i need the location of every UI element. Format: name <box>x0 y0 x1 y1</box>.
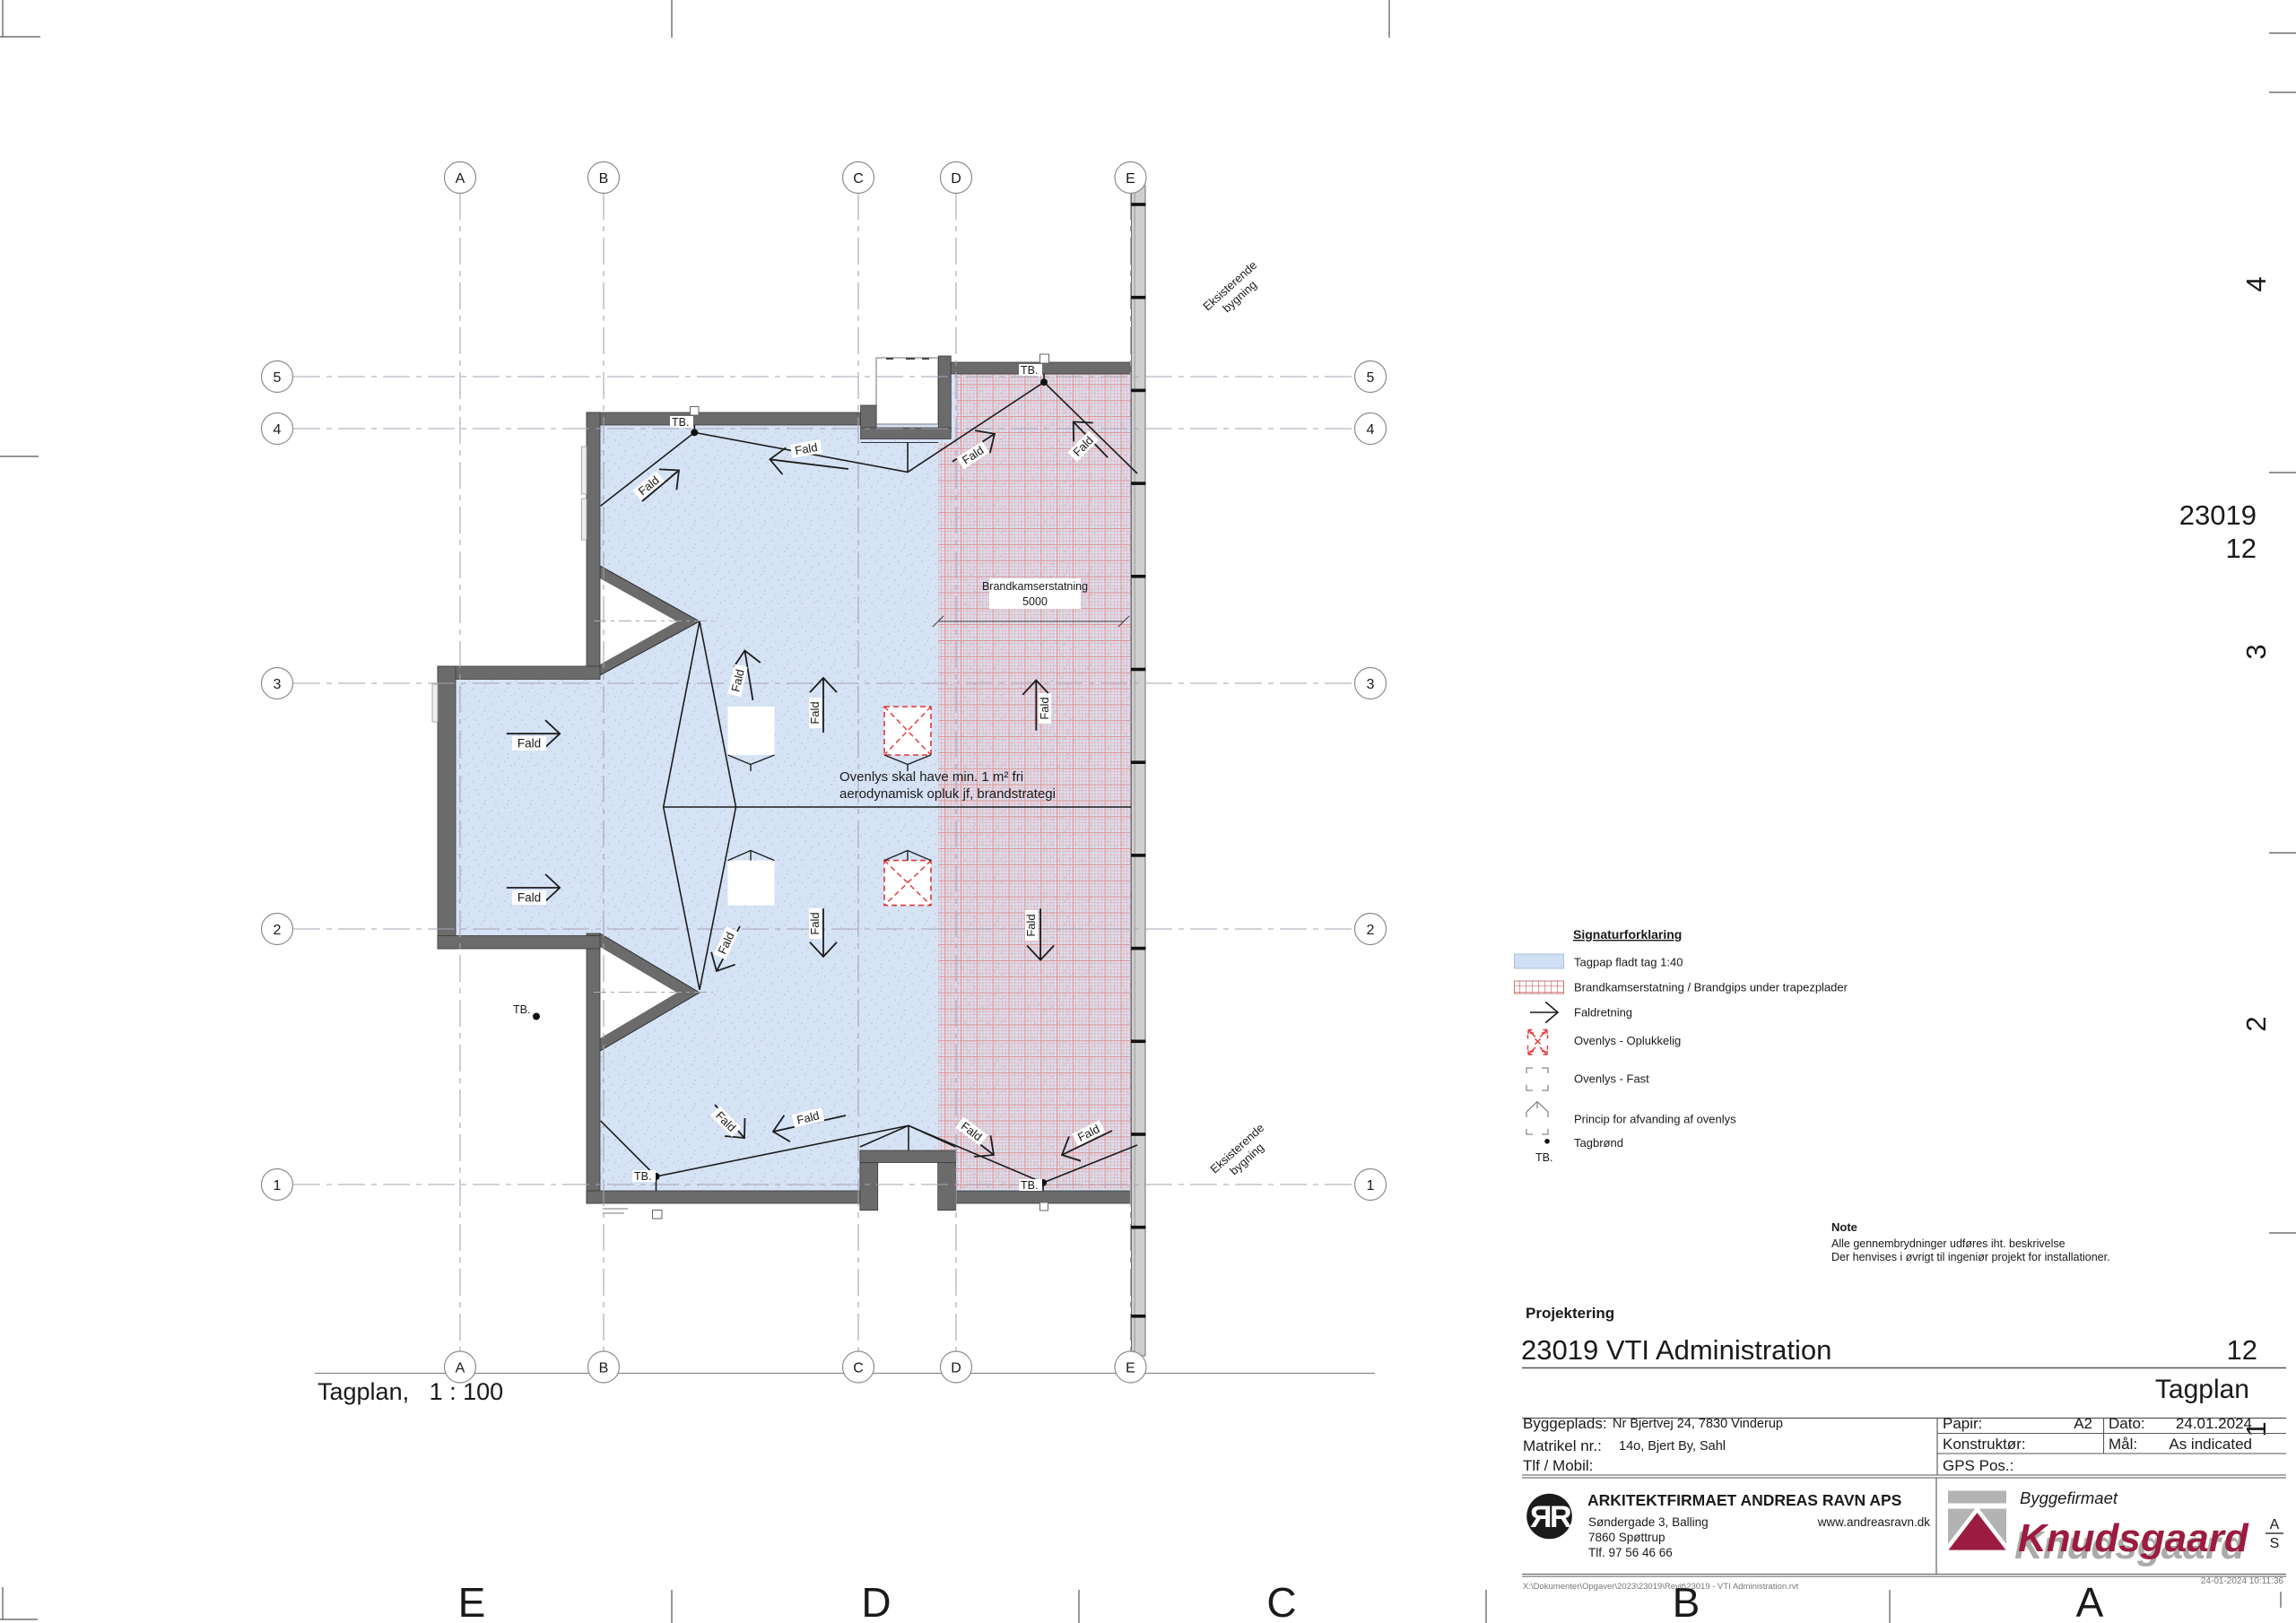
svg-text:2: 2 <box>2240 1016 2272 1031</box>
svg-text:4: 4 <box>274 422 282 438</box>
svg-text:GPS Pos.:: GPS Pos.: <box>1943 1457 2013 1474</box>
svg-text:Tlf. 97 56 46 66: Tlf. 97 56 46 66 <box>1588 1546 1673 1559</box>
svg-text:TB.: TB. <box>634 1170 651 1183</box>
svg-text:1: 1 <box>274 1178 282 1193</box>
svg-text:Projektering: Projektering <box>1526 1305 1614 1322</box>
svg-text:E: E <box>1126 171 1135 187</box>
svg-text:Matrikel nr.:: Matrikel nr.: <box>1523 1437 1602 1454</box>
svg-text:Brandkamserstatning: Brandkamserstatning <box>982 580 1088 593</box>
svg-text:Ovenlys - Fast: Ovenlys - Fast <box>1574 1072 1649 1086</box>
svg-text:Byggeplads:: Byggeplads: <box>1523 1415 1607 1432</box>
svg-text:TB.: TB. <box>672 416 689 429</box>
svg-text:TB.: TB. <box>1021 364 1038 377</box>
svg-text:24.01.2024: 24.01.2024 <box>2176 1415 2252 1432</box>
svg-text:As indicated: As indicated <box>2169 1436 2252 1453</box>
svg-text:A: A <box>456 1361 465 1376</box>
svg-text:A: A <box>2076 1579 2104 1623</box>
svg-text:7860 Spøttrup: 7860 Spøttrup <box>1588 1531 1665 1544</box>
svg-text:Dato:: Dato: <box>2109 1415 2145 1432</box>
svg-text:4: 4 <box>2240 276 2272 291</box>
svg-text:1: 1 <box>1367 1178 1375 1193</box>
svg-text:Fald: Fald <box>1024 914 1038 936</box>
svg-text:E: E <box>458 1579 486 1623</box>
svg-text:B: B <box>599 171 609 187</box>
svg-text:24-01-2024 10:11:36: 24-01-2024 10:11:36 <box>2201 1576 2284 1586</box>
svg-text:4: 4 <box>1367 422 1375 438</box>
svg-text:C: C <box>853 1361 864 1376</box>
svg-text:Papir:: Papir: <box>1943 1415 1982 1432</box>
svg-text:D: D <box>951 1361 961 1376</box>
svg-text:Fald: Fald <box>1038 697 1051 719</box>
svg-text:D: D <box>861 1579 891 1623</box>
svg-text:Nr Bjertvej 24, 7830 Vinderup: Nr Bjertvej 24, 7830 Vinderup <box>1613 1417 1783 1431</box>
svg-text:2: 2 <box>1367 923 1375 938</box>
svg-text:Mål:: Mål: <box>2109 1436 2137 1453</box>
svg-text:Fald: Fald <box>808 701 822 724</box>
svg-text:Faldretning: Faldretning <box>1574 1006 1632 1020</box>
svg-text:2: 2 <box>274 923 282 938</box>
svg-text:A: A <box>2270 1517 2280 1532</box>
svg-text:aerodynamisk opluk jf, brandst: aerodynamisk opluk jf, brandstrategi <box>839 786 1056 802</box>
svg-text:ARKITEKTFIRMAET ANDREAS RAVN A: ARKITEKTFIRMAET ANDREAS RAVN APS <box>1587 1491 1901 1509</box>
svg-text:Der henvises i øvrigt til inge: Der henvises i øvrigt til ingeniør proje… <box>1831 1251 2110 1263</box>
svg-text:X:\Dokumenter\Opgaver\2023\230: X:\Dokumenter\Opgaver\2023\23019\Revit\2… <box>1523 1582 1799 1592</box>
svg-text:ЯR: ЯR <box>1530 1500 1571 1534</box>
svg-text:S: S <box>2270 1536 2280 1551</box>
svg-text:3: 3 <box>1367 677 1375 692</box>
svg-text:E: E <box>1126 1361 1135 1376</box>
svg-text:Fald: Fald <box>808 912 822 934</box>
svg-text:14o, Bjert By, Sahl: 14o, Bjert By, Sahl <box>1619 1439 1726 1454</box>
svg-text:Søndergade 3, Balling: Søndergade 3, Balling <box>1588 1515 1709 1529</box>
svg-text:5: 5 <box>274 370 282 386</box>
svg-text:Konstruktør:: Konstruktør: <box>1943 1436 2026 1453</box>
svg-text:5000: 5000 <box>1022 595 1048 608</box>
svg-text:Tlf / Mobil:: Tlf / Mobil: <box>1523 1457 1593 1474</box>
svg-text:3: 3 <box>2240 644 2272 659</box>
svg-text:Ovenlys - Oplukkelig: Ovenlys - Oplukkelig <box>1574 1034 1681 1047</box>
svg-text:TB.: TB. <box>513 1003 530 1016</box>
svg-text:Signaturforklaring: Signaturforklaring <box>1573 927 1682 942</box>
svg-text:12: 12 <box>2226 533 2257 564</box>
svg-text:B: B <box>599 1361 609 1376</box>
svg-text:23019: 23019 <box>2179 499 2257 531</box>
svg-text:C: C <box>853 171 864 187</box>
svg-text:3: 3 <box>274 677 282 692</box>
svg-text:A2: A2 <box>2074 1415 2092 1432</box>
svg-text:C: C <box>1266 1579 1296 1623</box>
svg-text:Tagpap fladt tag 1:40: Tagpap fladt tag 1:40 <box>1574 956 1683 969</box>
svg-text:Princip for afvanding af ovenl: Princip for afvanding af ovenlys <box>1574 1113 1736 1126</box>
svg-text:TB.: TB. <box>1535 1151 1552 1164</box>
svg-text:Byggefirmaet: Byggefirmaet <box>2020 1488 2118 1507</box>
svg-text:Fald: Fald <box>517 891 541 905</box>
svg-text:Alle gennembrydninger udføres: Alle gennembrydninger udføres iht. beskr… <box>1831 1237 2066 1250</box>
svg-text:Tagplan: Tagplan <box>2155 1375 2249 1404</box>
svg-text:Note: Note <box>1831 1220 1857 1234</box>
svg-text:Brandkamserstatning / Brandgip: Brandkamserstatning / Brandgips under tr… <box>1574 981 1848 994</box>
svg-text:TB.: TB. <box>1021 1179 1038 1192</box>
svg-text:5: 5 <box>1367 370 1375 386</box>
svg-text:A: A <box>456 171 465 187</box>
svg-text:12: 12 <box>2227 1334 2257 1366</box>
svg-text:Tagplan, 1 : 100: Tagplan, 1 : 100 <box>317 1378 503 1405</box>
svg-text:D: D <box>951 171 961 187</box>
svg-text:Ovenlys skal have min. 1 m² fr: Ovenlys skal have min. 1 m² fri <box>839 769 1023 785</box>
svg-text:Fald: Fald <box>517 737 541 751</box>
svg-text:www.andreasravn.dk: www.andreasravn.dk <box>1817 1515 1931 1529</box>
svg-text:23019 VTI Administration: 23019 VTI Administration <box>1521 1334 1831 1366</box>
svg-text:Knudsgaard: Knudsgaard <box>2018 1516 2249 1560</box>
svg-text:Tagbrønd: Tagbrønd <box>1574 1136 1623 1150</box>
